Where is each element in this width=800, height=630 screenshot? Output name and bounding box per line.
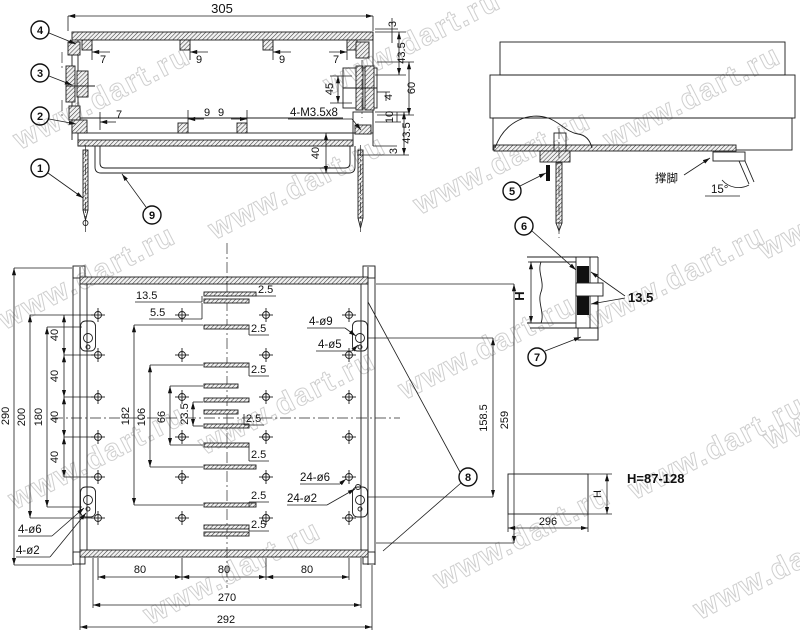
foot-angle: 15° [711,184,728,196]
callout-4d2: 4-ø2 [16,545,40,557]
dim-pitch-40: 40 [49,451,61,463]
dim-step-4: 4 [383,94,395,100]
balloon-5: 5 [503,182,521,200]
watermark-text: www.dart.ru [407,104,596,222]
callout-24d6: 24-ø6 [300,472,330,484]
balloon-number: 3 [37,68,43,80]
foot-label: 撑脚 [655,171,678,185]
balloon-1: 1 [31,159,49,177]
dim-23-5: 23.5 [179,403,191,424]
balloon-number: 9 [149,210,155,222]
dim-200: 200 [16,408,28,426]
height-range-label: H=87-128 [627,471,684,486]
balloon-4: 4 [31,21,49,39]
balloon-number: 4 [37,25,44,37]
dim-2-5: 2.5 [251,490,266,502]
dim-right-upper: 43.5 [396,42,408,63]
balloon-8: 8 [459,468,477,486]
dim-270: 270 [218,592,236,604]
height-h-label: H [592,490,604,498]
dim-292: 292 [217,614,235,626]
dim-290: 290 [0,407,12,425]
dim-80: 80 [134,564,146,576]
callout-4d6: 4-ø6 [18,524,42,536]
dim-right-top-lip: 3 [387,21,399,27]
watermark-text: www.dart.ru [597,39,786,157]
corner-bracket [353,487,368,517]
dim-pitch-40: 40 [49,329,61,341]
balloon-number: 8 [465,472,471,484]
dim-2-5: 2.5 [251,519,266,531]
dim-top-tab-3: 9 [279,54,285,66]
dim-80: 80 [301,564,313,576]
dim-bail-depth: 40 [310,147,322,159]
dim-bottom-tab-3: 9 [218,107,224,119]
balloon-3: 3 [31,64,49,82]
callout-4d5: 4-ø5 [318,339,342,351]
corner-bracket [81,321,96,351]
dim-5-5: 5.5 [150,307,165,319]
dim-2-5: 2.5 [251,323,266,335]
dim-top-tab-1: 7 [100,54,106,66]
balloon-number: 5 [509,186,515,198]
dim-right-mid: 60 [406,82,418,94]
corner-bracket [81,487,96,517]
dim-overall-width: 305 [211,1,233,16]
dim-259: 259 [499,411,511,429]
drawing-canvas: www.dart.ru www.dart.ru www.dart.ru www.… [0,0,800,630]
dim-pitch-40: 40 [49,370,61,382]
watermark-text: www.dart.ru [137,514,326,630]
dim-158-5: 158.5 [478,404,490,432]
dim-13-5: 13.5 [136,290,157,302]
dim-296: 296 [539,516,557,528]
balloon-number: 2 [37,111,43,123]
dim-step-10: 10 [384,111,396,123]
engineering-drawing: www.dart.ru www.dart.ru www.dart.ru www.… [0,0,800,630]
dim-2-5: 2.5 [251,364,266,376]
dim-180: 180 [33,408,45,426]
balloon-number: 1 [37,163,43,175]
dim-2-5: 2.5 [246,413,261,425]
dim-bottom-tab-2: 9 [204,107,210,119]
dim-2-5: 2.5 [251,449,266,461]
dim-pitch-40: 40 [49,411,61,423]
clamp-gap-dim: 13.5 [628,290,653,305]
watermark-text: www.dart.ru [687,509,800,627]
balloon-9: 9 [143,206,161,224]
watermark-layer: www.dart.ru www.dart.ru www.dart.ru www.… [0,0,800,630]
watermark-text: www.dart.ru [752,149,800,267]
callout-24d2: 24-ø2 [287,493,317,505]
dim-top-tab-4: 7 [333,54,339,66]
dim-right-lower: 43.5 [401,122,413,143]
dim-bottom-tab-1: 7 [116,109,122,121]
dim-182: 182 [120,407,132,425]
balloon-number: 7 [534,352,540,364]
dim-80: 80 [218,564,230,576]
balloon-7: 7 [528,348,546,366]
dim-106: 106 [136,408,148,426]
dim-66: 66 [156,411,168,423]
callout-4d9: 4-ø9 [309,316,333,328]
balloon-number: 6 [521,221,527,233]
thread-callout: 4-M3.5x8 [290,107,338,119]
dim-clamp-45: 45 [324,83,336,95]
dim-2-5: 2.5 [258,284,273,296]
dim-top-tab-2: 9 [196,54,202,66]
watermark-text: www.dart.ru [582,219,771,337]
balloon-6: 6 [515,217,533,235]
dim-right-bottom-lip: 3 [388,148,400,154]
